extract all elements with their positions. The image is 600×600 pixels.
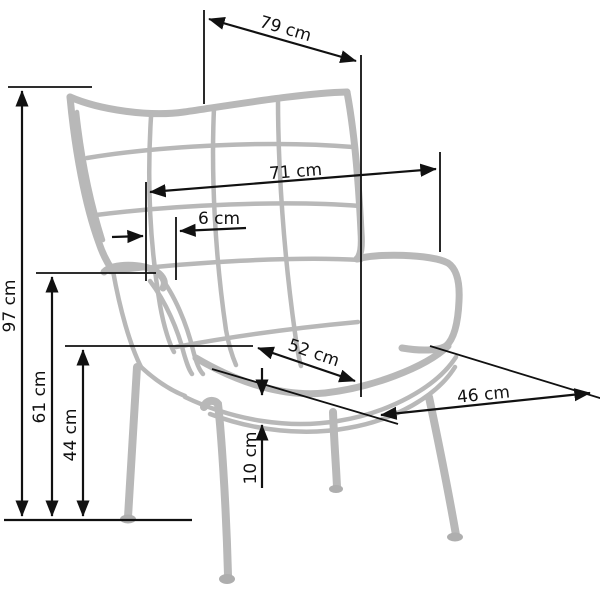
dimension-arrow-left [112,236,143,237]
chair-right-armrest [357,255,459,350]
dimension-back-width: 71 cm [146,152,440,281]
dimension-seat-depth: 52 cm [258,335,355,381]
dimension-label-tuft-spacing: 6 cm [198,209,240,229]
front-right-leg [204,401,228,575]
chair-dimension-drawing: 79 cm 71 cm 6 cm 52 cm 46 cm [0,0,600,600]
back-right-leg [429,397,456,535]
dimension-label-seat-height: 44 cm [61,409,81,462]
dimension-label-cushion-thickness: 10 cm [241,432,261,485]
chair-left-armrest [104,265,203,396]
chair-legs [120,367,463,584]
dimension-label-arm-height: 61 cm [30,371,50,424]
chair-figure [70,92,463,584]
back-left-foot [329,485,343,493]
chair-tuft-grid [87,99,361,366]
back-left-leg [333,412,337,487]
dimension-seat-front-width: 46 cm [212,346,600,424]
front-right-foot [219,574,235,584]
front-left-leg [128,367,137,517]
dimension-label-total-height: 97 cm [0,280,20,333]
dimension-drawing-page: 79 cm 71 cm 6 cm 52 cm 46 cm [0,0,600,600]
dimension-label-seat-front-width: 46 cm [456,382,511,407]
dimension-label-back-width: 71 cm [268,160,322,184]
back-right-foot [447,533,463,542]
